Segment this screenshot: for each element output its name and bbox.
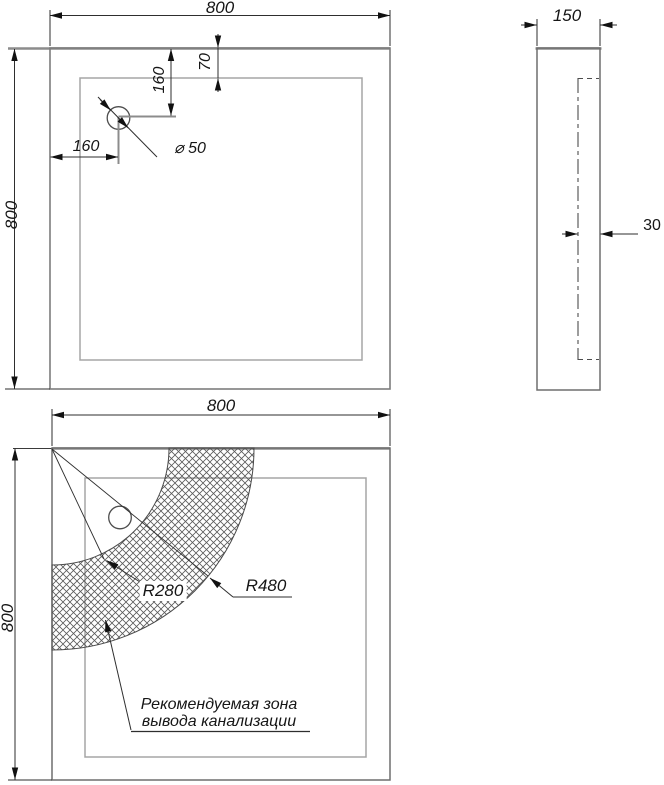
technical-drawing-page: 800 800 70 160 160 ⌀ 50 150 30 800 800 R…: [0, 0, 664, 785]
bottom-view-width-label: 800: [207, 396, 235, 416]
bottom-view-height-label: 800: [0, 604, 18, 632]
drawing-linework: [0, 0, 664, 785]
top-view-outer-rect: [50, 48, 390, 389]
top-view-drain-diameter-leader: [98, 97, 157, 157]
drain-zone-note-line1: Рекомендуемая зона: [131, 697, 307, 714]
side-view-outline: [537, 48, 600, 390]
top-view-drain-vertical-label: 160: [151, 67, 169, 94]
top-view-drain-horizontal-label: 160: [73, 138, 100, 156]
side-view-depth-label: 150: [553, 6, 581, 26]
inner-radius-label: R280: [140, 581, 187, 601]
outer-radius-label: R480: [246, 576, 287, 596]
bottom-view-drain-circle: [109, 506, 132, 529]
top-view-width-label: 800: [206, 0, 234, 18]
drain-zone-note: Рекомендуемая зона вывода канализации: [131, 697, 307, 730]
side-view-recess-label: 30: [643, 217, 661, 235]
drain-zone-note-line2: вывода канализации: [131, 714, 307, 731]
top-view-rim-label: 70: [197, 53, 215, 71]
top-view-height-label: 800: [2, 201, 22, 229]
side-view-hidden-recess-line: [578, 78, 599, 360]
side-view: [521, 19, 638, 390]
top-view-drain-diameter-label: ⌀ 50: [174, 138, 206, 158]
